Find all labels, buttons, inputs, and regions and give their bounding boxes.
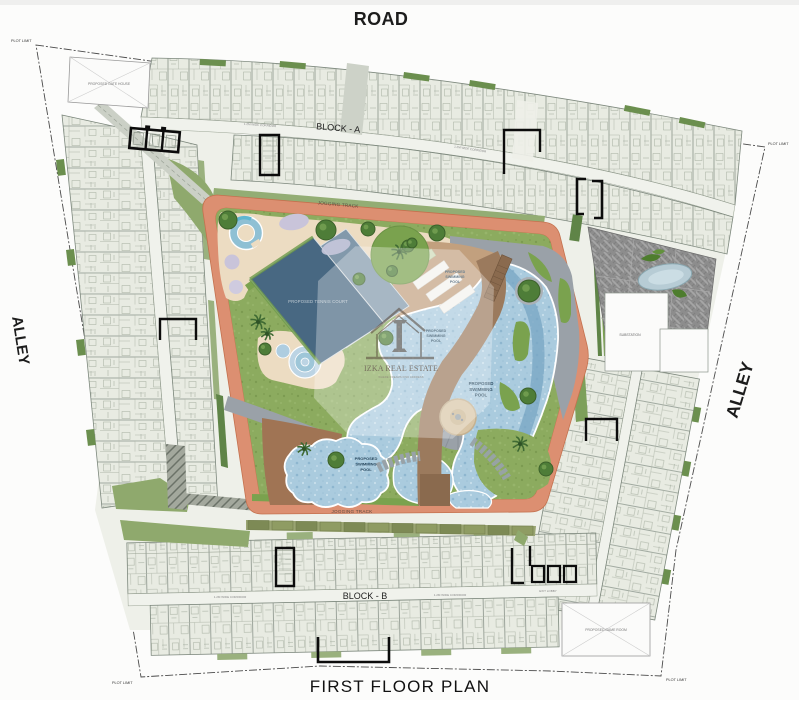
- svg-text:PLOT LIMIT: PLOT LIMIT: [11, 39, 32, 43]
- svg-text:PROPOSED GATE HOUSE: PROPOSED GATE HOUSE: [88, 82, 131, 86]
- svg-text:PLOT LIMIT: PLOT LIMIT: [112, 681, 133, 685]
- svg-text:IZKA REAL ESTATE: IZKA REAL ESTATE: [364, 364, 438, 373]
- svg-text:PROPOSED GAME ROOM: PROPOSED GAME ROOM: [585, 628, 627, 632]
- svg-text:PLOT LIMIT: PLOT LIMIT: [768, 142, 789, 146]
- svg-text:SWIMMING: SWIMMING: [355, 461, 376, 466]
- svg-text:POOL: POOL: [360, 467, 372, 472]
- svg-text:PLOT LIMIT: PLOT LIMIT: [666, 678, 687, 682]
- svg-text:1.2M WIDE CORRIDOR: 1.2M WIDE CORRIDOR: [434, 593, 467, 597]
- svg-text:EXIT LOBBY: EXIT LOBBY: [539, 589, 556, 593]
- svg-text:PROPOSED: PROPOSED: [355, 456, 378, 461]
- svg-text:ROAD: ROAD: [354, 9, 409, 29]
- svg-text:SUBSTATION: SUBSTATION: [619, 333, 641, 337]
- svg-text:FIRST FLOOR PLAN: FIRST FLOOR PLAN: [310, 677, 490, 696]
- svg-text:1.2M WIDE CORRIDOR: 1.2M WIDE CORRIDOR: [214, 595, 247, 599]
- svg-text:JOGGING TRACK: JOGGING TRACK: [332, 509, 374, 514]
- svg-text:BLOCK - B: BLOCK - B: [343, 591, 388, 601]
